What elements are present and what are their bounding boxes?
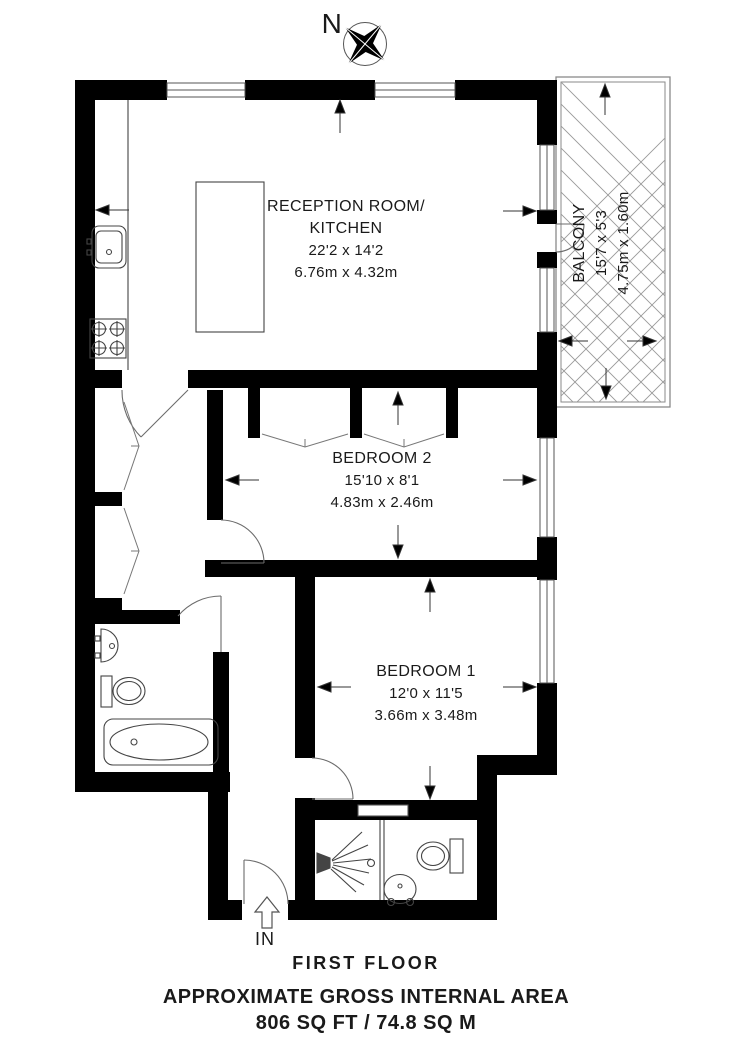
area-title: APPROXIMATE GROSS INTERNAL AREA (163, 986, 569, 1009)
bathtub-icon (104, 719, 218, 765)
room-dimensions-imperial: 15'7 x 5'3 (591, 153, 613, 333)
up-arrow-icon (255, 897, 279, 928)
shower-room-fixtures (317, 820, 463, 906)
entrance-in-label: IN (255, 929, 275, 950)
compass-rose-icon (344, 23, 387, 66)
kitchen-fixtures (87, 100, 264, 370)
dim-arrow-left (318, 682, 351, 692)
dim-arrow-right (503, 206, 536, 216)
bedroom2-label: BEDROOM 2 15'10 x 8'1 4.83m x 2.46m (330, 448, 433, 514)
room-name: BEDROOM 1 (374, 661, 477, 683)
room-dimensions-imperial: 12'0 x 11'5 (374, 683, 477, 705)
kitchen-island-icon (196, 182, 264, 332)
compass-north-label: N (322, 8, 343, 40)
bathroom-toilet-icon (101, 676, 145, 707)
dim-arrow-up (393, 392, 403, 425)
shower-icon (317, 820, 384, 900)
room-dimensions-metric: 3.66m x 3.48m (374, 705, 477, 727)
bedroom1-door (312, 758, 353, 799)
bath-basin-icon (95, 629, 118, 662)
dim-arrow-up (425, 579, 435, 612)
bedroom1-label: BEDROOM 1 12'0 x 11'5 3.66m x 3.48m (374, 661, 477, 727)
room-name: BEDROOM 2 (330, 448, 433, 470)
dim-arrow-left (559, 336, 588, 346)
dim-arrow-down (425, 766, 435, 799)
room-name: KITCHEN (267, 218, 425, 240)
dim-arrow-right (503, 475, 536, 485)
hall-closet-bifold-icon (124, 402, 139, 594)
hob-icon (90, 319, 126, 358)
balcony-label: BALCONY 15'7 x 5'3 4.75m x 1.60m (569, 153, 635, 333)
dim-arrow-up (335, 100, 345, 133)
room-dimensions-imperial: 22'2 x 14'2 (267, 240, 425, 262)
floor-title: FIRST FLOOR (292, 953, 440, 974)
dim-arrow-down (393, 525, 403, 558)
bathroom-door (178, 596, 221, 652)
dim-arrow-left (226, 475, 259, 485)
room-dimensions-imperial: 15'10 x 8'1 (330, 470, 433, 492)
area-value: 806 SQ FT / 74.8 SQ M (256, 1012, 477, 1035)
window-icon (540, 268, 554, 332)
room-name: RECEPTION ROOM/ (267, 196, 425, 218)
bathroom-fixtures (95, 629, 218, 765)
room-dimensions-metric: 6.76m x 4.32m (267, 262, 425, 284)
window-icon (540, 580, 554, 683)
dim-arrow-up (600, 84, 610, 115)
window-icon (375, 83, 455, 97)
floor-plan: N RECEPTION ROOM/ KITCHEN 22'2 x 14'2 6.… (0, 0, 732, 1050)
dim-arrow-right (503, 682, 536, 692)
room-dimensions-metric: 4.75m x 1.60m (613, 153, 635, 333)
reception-door (122, 390, 188, 437)
dim-arrow-left (96, 205, 129, 215)
bedroom2-door (221, 520, 264, 563)
window-icon (540, 438, 554, 537)
room-dimensions-metric: 4.83m x 2.46m (330, 492, 433, 514)
room-name: BALCONY (569, 153, 591, 333)
window-icon (540, 145, 554, 210)
reception-room-label: RECEPTION ROOM/ KITCHEN 22'2 x 14'2 6.76… (267, 196, 425, 284)
shower-room-toilet-icon (417, 839, 463, 873)
window-icon (167, 83, 245, 97)
